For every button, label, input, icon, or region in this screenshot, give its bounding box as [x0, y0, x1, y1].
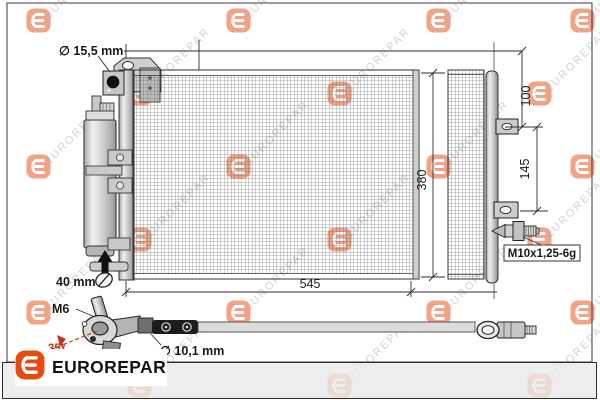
- label-port-diameter: ∅ 15,5 mm: [59, 44, 123, 58]
- label-hose-diameter: ∅ 10,1 mm: [160, 344, 224, 358]
- hose-tube: [198, 322, 475, 332]
- label-dim-100: 100: [519, 86, 533, 107]
- label-m6-thread: M6: [52, 302, 69, 316]
- service-valve: [82, 296, 142, 352]
- side-tube: [486, 71, 498, 283]
- label-dim-145: 145: [518, 159, 532, 180]
- technical-drawing: ∅ 15,5 mm 100 145 380 545 40 mm M6 ∅ 10,…: [0, 0, 600, 400]
- label-dim-545: 545: [300, 277, 321, 291]
- e-icon: [15, 350, 45, 380]
- eurorepar-logo-icon: [15, 350, 45, 385]
- screw-symbol: [93, 270, 114, 290]
- label-m10-thread: M10x1,25-6g: [508, 248, 576, 260]
- condenser-front-view: [84, 58, 419, 290]
- brand-name: EUROREPAR: [52, 357, 166, 378]
- core-mesh: [134, 76, 418, 273]
- brand-logo: EUROREPAR: [15, 349, 167, 386]
- label-dim-380: 380: [415, 170, 429, 191]
- footer-bar: EUROREPAR: [2, 362, 597, 399]
- product-image: EUROREPAREUROREPAREUROREPAREUROREPAREURO…: [0, 0, 600, 400]
- m10-fitting: [492, 222, 539, 241]
- port-hole: [107, 76, 120, 89]
- hose-assembly: [82, 296, 536, 352]
- label-drier-dimension: 40 mm: [56, 275, 96, 289]
